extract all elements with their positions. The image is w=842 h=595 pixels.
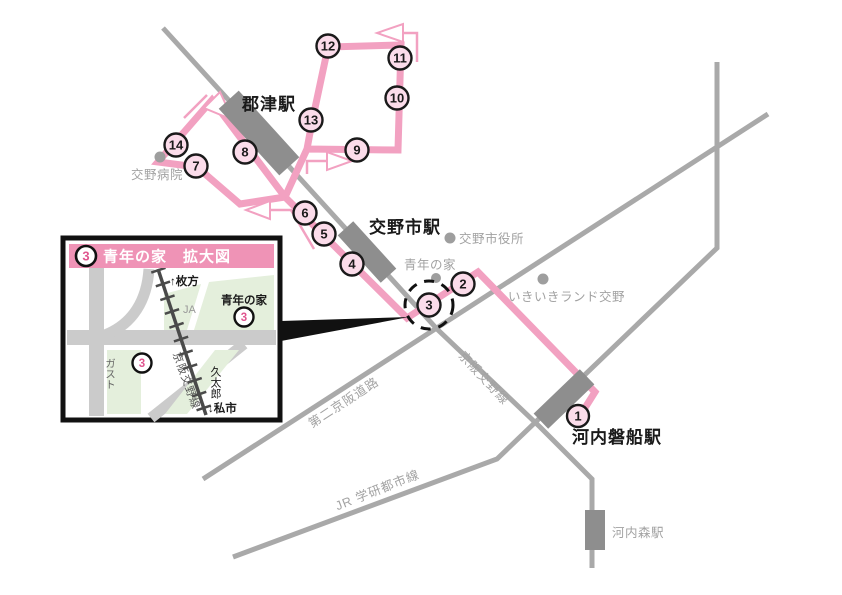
stop-badge-12: 12 — [317, 35, 340, 58]
stop-badge-3: 3 — [418, 294, 441, 317]
inset-callout-wedge — [281, 317, 409, 341]
inset-title: 青年の家 拡大図 — [103, 248, 231, 266]
poi-label-seinen-no-ie: 青年の家 — [404, 257, 456, 272]
station-label-katanoshi: 交野市駅 — [369, 217, 441, 237]
map-canvas: 第二京阪道路 京阪交野線 JR 学研都市線 郡津駅 交野市駅 河内磐船駅 河内森… — [0, 0, 842, 595]
direction-arrow-east — [307, 152, 352, 174]
svg-text:5: 5 — [320, 227, 327, 242]
station-label-kozu: 郡津駅 — [241, 94, 296, 114]
stop-badge-5: 5 — [313, 223, 336, 246]
inset-stop-badge-seinen: 3 — [235, 308, 254, 327]
svg-text:1: 1 — [574, 409, 581, 424]
daini-keihan-road-label: 第二京阪道路 — [305, 374, 381, 431]
stop-badge-1: 1 — [567, 405, 589, 427]
svg-text:7: 7 — [192, 159, 199, 174]
svg-text:8: 8 — [241, 145, 248, 160]
stop-badge-7: 7 — [185, 155, 208, 178]
stop-badge-14: 14 — [165, 134, 188, 157]
inset-seinen-label: 青年の家 — [221, 293, 267, 307]
svg-text:11: 11 — [393, 51, 407, 66]
svg-text:9: 9 — [353, 143, 360, 158]
station-rect-kawachi-mori — [585, 510, 605, 550]
inset-box: ↑枚方 ↓私市 JA 青年の家 ガスト 久太郎 京阪交野線 3 3 3 青年の家… — [63, 238, 280, 420]
stop-badge-11: 11 — [389, 47, 412, 70]
stop-badge-10: 10 — [386, 87, 409, 110]
poi-dot-ikiiki-land — [538, 274, 549, 285]
route-map: 第二京阪道路 京阪交野線 JR 学研都市線 郡津駅 交野市駅 河内磐船駅 河内森… — [0, 0, 842, 595]
poi-dot-katano-hospital — [155, 152, 166, 163]
stop-badge-2: 2 — [452, 273, 475, 296]
inset-kyutaro-label: 久太郎 — [209, 366, 222, 399]
poi-label-katano-hospital: 交野病院 — [131, 167, 183, 182]
kisaichi-direction-label: ↓私市 — [208, 401, 237, 415]
keihan-line-label: 京阪交野線 — [456, 348, 513, 408]
stop-badge-6: 6 — [294, 202, 317, 225]
svg-text:6: 6 — [301, 206, 308, 221]
stop-badge-9: 9 — [346, 139, 369, 162]
inset-road-vertical — [89, 268, 104, 416]
svg-text:14: 14 — [169, 138, 184, 153]
stop-badge-8: 8 — [234, 141, 257, 164]
station-label-kawachi-iwafune: 河内磐船駅 — [572, 427, 662, 447]
svg-text:3: 3 — [425, 298, 432, 313]
inset-title-badge-number: 3 — [82, 249, 89, 264]
svg-text:3: 3 — [139, 358, 145, 370]
inset-ja-label: JA — [183, 304, 197, 316]
stop-badge-13: 13 — [300, 109, 323, 132]
svg-text:13: 13 — [304, 113, 318, 128]
jr-gakkentoshi-line — [233, 62, 717, 557]
svg-text:4: 4 — [348, 257, 356, 272]
poi-label-ikiiki-land: いきいきランド交野 — [508, 289, 625, 304]
stop-badge-4: 4 — [341, 253, 364, 276]
inset-stop-badge-kyutaro: 3 — [133, 354, 152, 373]
svg-text:12: 12 — [321, 39, 335, 54]
station-label-kawachi-mori: 河内森駅 — [612, 525, 664, 540]
inset-gusto-label: ガスト — [104, 358, 116, 390]
poi-dot-city-hall — [445, 233, 456, 244]
poi-label-city-hall: 交野市役所 — [459, 231, 524, 246]
arrow-left-icon — [377, 24, 403, 42]
svg-text:2: 2 — [459, 277, 466, 292]
svg-text:10: 10 — [390, 91, 404, 106]
hirakata-direction-label: ↑枚方 — [170, 274, 199, 288]
svg-text:3: 3 — [241, 312, 247, 324]
